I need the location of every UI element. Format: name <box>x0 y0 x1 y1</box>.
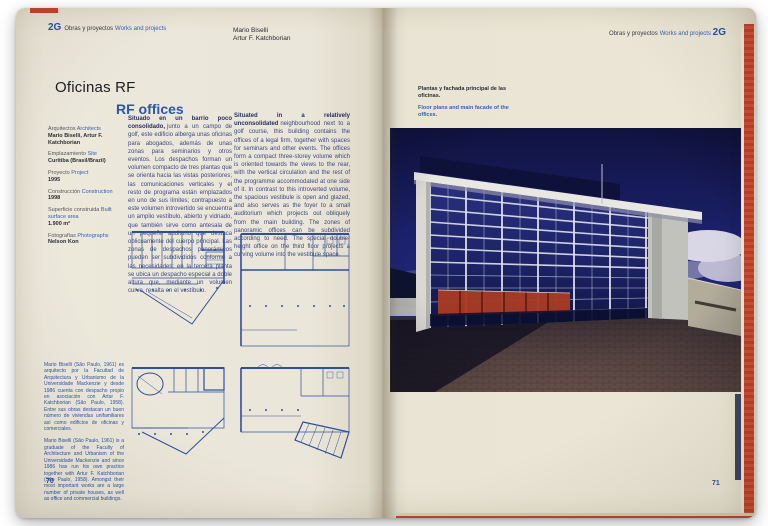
info-label-en: Site <box>87 151 96 157</box>
authors-block: Mario Biselli Artur F. Katchborian <box>233 27 290 43</box>
info-label-es: Superficie construida <box>48 207 99 213</box>
project-info-sidebar: Arquitectos Architects Mario Biselli, Ar… <box>48 126 126 251</box>
floor-plan-icon <box>237 362 356 466</box>
info-site: Emplazamiento Site Curitiba (Brasil/Braz… <box>48 151 126 165</box>
floor-plan-icon <box>128 226 232 360</box>
info-label-en: Project <box>71 170 88 176</box>
header-label-en: Works and projects <box>115 26 166 32</box>
red-edge-tab <box>30 8 58 13</box>
info-value: 1995 <box>48 177 126 184</box>
info-value: 1998 <box>48 195 126 202</box>
building-facade-photo <box>390 128 741 392</box>
bottom-page-edge <box>396 513 754 518</box>
floor-plan-drawing-upper-left <box>128 226 232 360</box>
info-label-es: Emplazamiento <box>48 151 86 157</box>
info-label-es: Construcción <box>48 189 80 195</box>
right-page-header: Obras y proyectosWorks and projects 2G <box>606 27 726 38</box>
red-fore-edge <box>744 24 754 515</box>
book-spread: 2GObras y proyectosWorks and projects Ma… <box>16 8 756 518</box>
project-title-es: Oficinas RF <box>55 79 136 96</box>
floor-plan-icon <box>128 362 232 466</box>
info-photographs: Fotografías Photographs Nelson Kon <box>48 233 126 247</box>
building-photo-illustration <box>390 128 741 392</box>
info-project-year: Proyecto Project 1995 <box>48 170 126 184</box>
floor-plan-icon <box>237 226 356 360</box>
left-page-header: 2GObras y proyectosWorks and projects <box>48 22 166 33</box>
header-label-es: Obras y proyectos <box>64 26 113 32</box>
photo-caption: Plantas y fachada principal de las ofici… <box>418 86 518 119</box>
header-label-en: Works and projects <box>660 31 711 37</box>
info-architects: Arquitectos Architects Mario Biselli, Ar… <box>48 126 126 146</box>
page-number-right: 71 <box>712 480 720 487</box>
info-value: Curitiba (Brasil/Brazil) <box>48 158 126 165</box>
info-label-en: Construction <box>82 189 113 195</box>
bio-english: Mario Biselli (São Paulo, 1961) is a gra… <box>44 438 124 502</box>
caption-en: Floor plans and main facade of the offic… <box>418 105 518 119</box>
caption-es: Plantas y fachada principal de las ofici… <box>418 86 518 100</box>
floor-plan-drawing-lower-left <box>128 362 232 466</box>
info-surface-area: Superficie construida Built surface area… <box>48 207 126 227</box>
info-label-en: Architects <box>77 126 101 132</box>
info-label-es: Arquitectos <box>48 126 76 132</box>
2g-logo: 2G <box>48 22 61 33</box>
page-number-left: 70 <box>46 478 54 485</box>
bio-spanish: Mario Biselli (São Paulo, 1961) es arqui… <box>44 362 124 432</box>
info-label-en: Photographs <box>77 233 108 239</box>
floor-plan-drawing-lower-right <box>237 362 356 466</box>
info-label-es: Fotografías <box>48 233 76 239</box>
info-value: 1.900 m² <box>48 221 126 228</box>
architect-bio: Mario Biselli (São Paulo, 1961) es arqui… <box>44 362 124 509</box>
author-name: Artur F. Katchborian <box>233 35 290 43</box>
author-name: Mario Biselli <box>233 27 290 35</box>
floor-plan-drawing-upper-right <box>237 226 356 360</box>
book-scan: 2GObras y proyectosWorks and projects Ma… <box>0 0 768 526</box>
info-value: Mario Biselli, Artur F. Katchborian <box>48 133 126 147</box>
2g-logo: 2G <box>713 27 726 38</box>
header-label-es: Obras y proyectos <box>609 31 658 37</box>
info-label-es: Proyecto <box>48 170 70 176</box>
info-value: Nelson Kon <box>48 239 126 246</box>
left-page: 2GObras y proyectosWorks and projects Ma… <box>16 8 382 518</box>
info-construction-year: Construcción Construction 1998 <box>48 189 126 203</box>
